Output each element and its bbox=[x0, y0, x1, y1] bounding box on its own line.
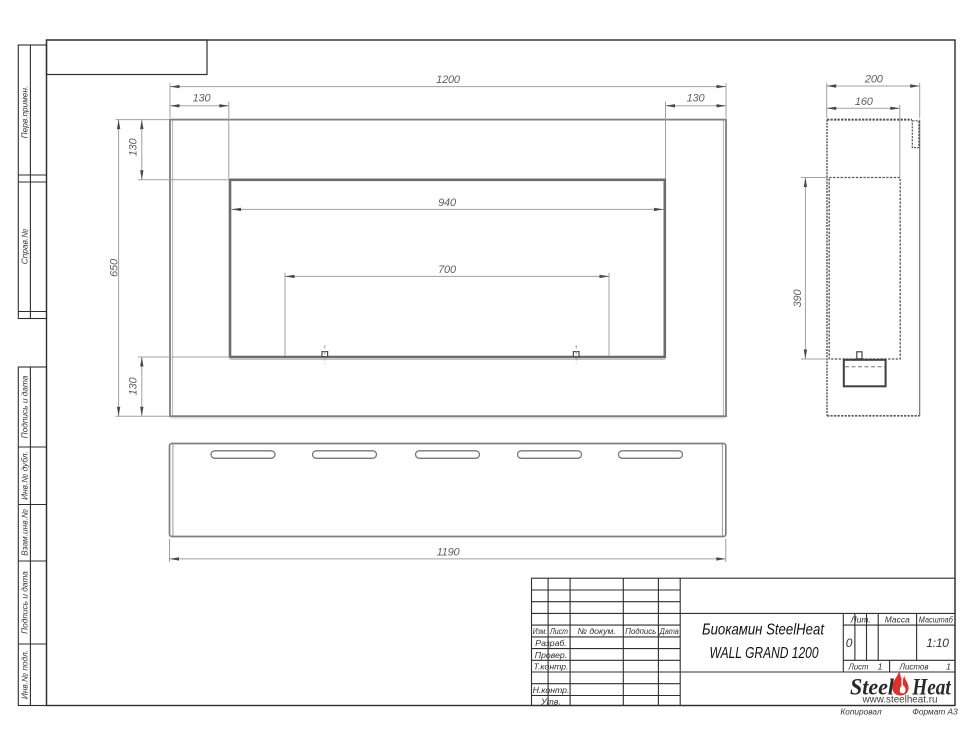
svg-text:390: 390 bbox=[792, 289, 804, 308]
svg-text:Подпись: Подпись bbox=[625, 626, 656, 636]
svg-text:Справ.№: Справ.№ bbox=[20, 229, 30, 264]
svg-text:Взам.инв.№: Взам.инв.№ bbox=[20, 509, 30, 556]
svg-text:Формат А3: Формат А3 bbox=[912, 707, 958, 717]
svg-text:Масса: Масса bbox=[885, 615, 910, 625]
svg-text:Биокамин SteelHeat: Биокамин SteelHeat bbox=[702, 622, 824, 639]
svg-text:Инв.№ подл.: Инв.№ подл. bbox=[20, 650, 30, 699]
svg-text:Н.контр.: Н.контр. bbox=[533, 685, 570, 695]
svg-text:Подпись и дата: Подпись и дата bbox=[20, 375, 30, 438]
svg-text:Изм.: Изм. bbox=[533, 626, 548, 636]
svg-text:Инв.№ дубл.: Инв.№ дубл. bbox=[20, 451, 30, 500]
svg-text:№ докум.: № докум. bbox=[578, 626, 616, 636]
svg-text:700: 700 bbox=[438, 264, 457, 276]
svg-text:Копировал: Копировал bbox=[840, 707, 882, 717]
svg-text:1:10: 1:10 bbox=[926, 636, 949, 650]
svg-text:Масштаб: Масштаб bbox=[919, 615, 954, 625]
svg-text:1: 1 bbox=[878, 661, 883, 671]
svg-text:Дата: Дата bbox=[659, 626, 679, 636]
svg-text:130: 130 bbox=[687, 93, 706, 105]
svg-text:1200: 1200 bbox=[436, 74, 461, 86]
svg-text:Лит.: Лит. bbox=[850, 615, 871, 625]
svg-text:160: 160 bbox=[855, 96, 874, 108]
svg-text:www.steelheat.ru: www.steelheat.ru bbox=[862, 694, 938, 705]
svg-text:Разраб.: Разраб. bbox=[535, 638, 566, 648]
svg-text:1190: 1190 bbox=[437, 546, 461, 558]
svg-text:WALL GRAND 1200: WALL GRAND 1200 bbox=[710, 645, 819, 662]
svg-text:Листов: Листов bbox=[899, 661, 929, 671]
svg-text:Провер.: Провер. bbox=[535, 650, 567, 660]
svg-text:Т.контр.: Т.контр. bbox=[533, 662, 568, 672]
svg-text:Лист: Лист bbox=[549, 626, 568, 636]
svg-text:130: 130 bbox=[128, 138, 140, 157]
svg-text:Лист: Лист bbox=[848, 661, 869, 671]
svg-text:Утв.: Утв. bbox=[540, 697, 561, 707]
svg-text:Перв.примен.: Перв.примен. bbox=[20, 86, 30, 139]
svg-text:200: 200 bbox=[864, 74, 884, 86]
svg-text:130: 130 bbox=[193, 93, 212, 105]
svg-text:130: 130 bbox=[128, 377, 140, 396]
svg-text:Подпись и дата: Подпись и дата bbox=[20, 571, 30, 634]
svg-text:0: 0 bbox=[846, 636, 853, 650]
svg-text:940: 940 bbox=[438, 197, 457, 209]
svg-text:650: 650 bbox=[109, 258, 121, 277]
svg-text:1: 1 bbox=[946, 661, 951, 671]
